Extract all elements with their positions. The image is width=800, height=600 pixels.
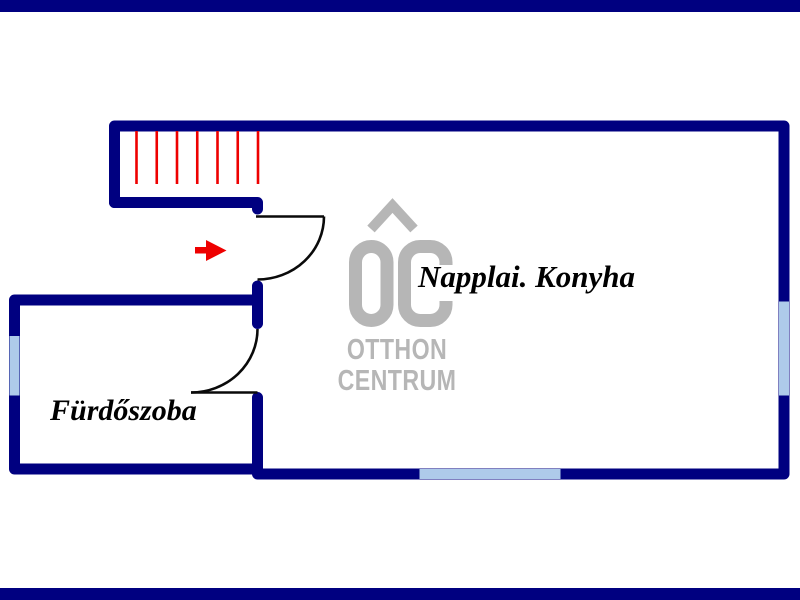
door-hall [256, 217, 324, 280]
room-label-bathroom: Fürdőszoba [50, 396, 197, 426]
entry-arrow-head [206, 240, 227, 261]
floorplan-drawing [0, 0, 800, 600]
stairs-icon [137, 131, 259, 184]
watermark-line1: OTTHON [317, 336, 477, 365]
entry-arrow-icon [195, 240, 227, 261]
logo-letter-o [356, 247, 388, 321]
door-bathroom [191, 329, 258, 393]
wall-stair-bottom [115, 203, 258, 210]
logo-roof-icon [371, 206, 414, 230]
room-label-living-kitchen: Napplai. Konyha [418, 261, 635, 292]
bottom-border-bar [0, 588, 800, 600]
door-hall-swing-arc [258, 217, 325, 280]
floorplan-canvas: OTTHON CENTRUM Napplai. Konyha Fürdőszob… [0, 0, 800, 600]
door-bathroom-swing-arc [191, 329, 258, 393]
top-border-bar [0, 0, 800, 12]
watermark-line2: CENTRUM [317, 367, 477, 396]
